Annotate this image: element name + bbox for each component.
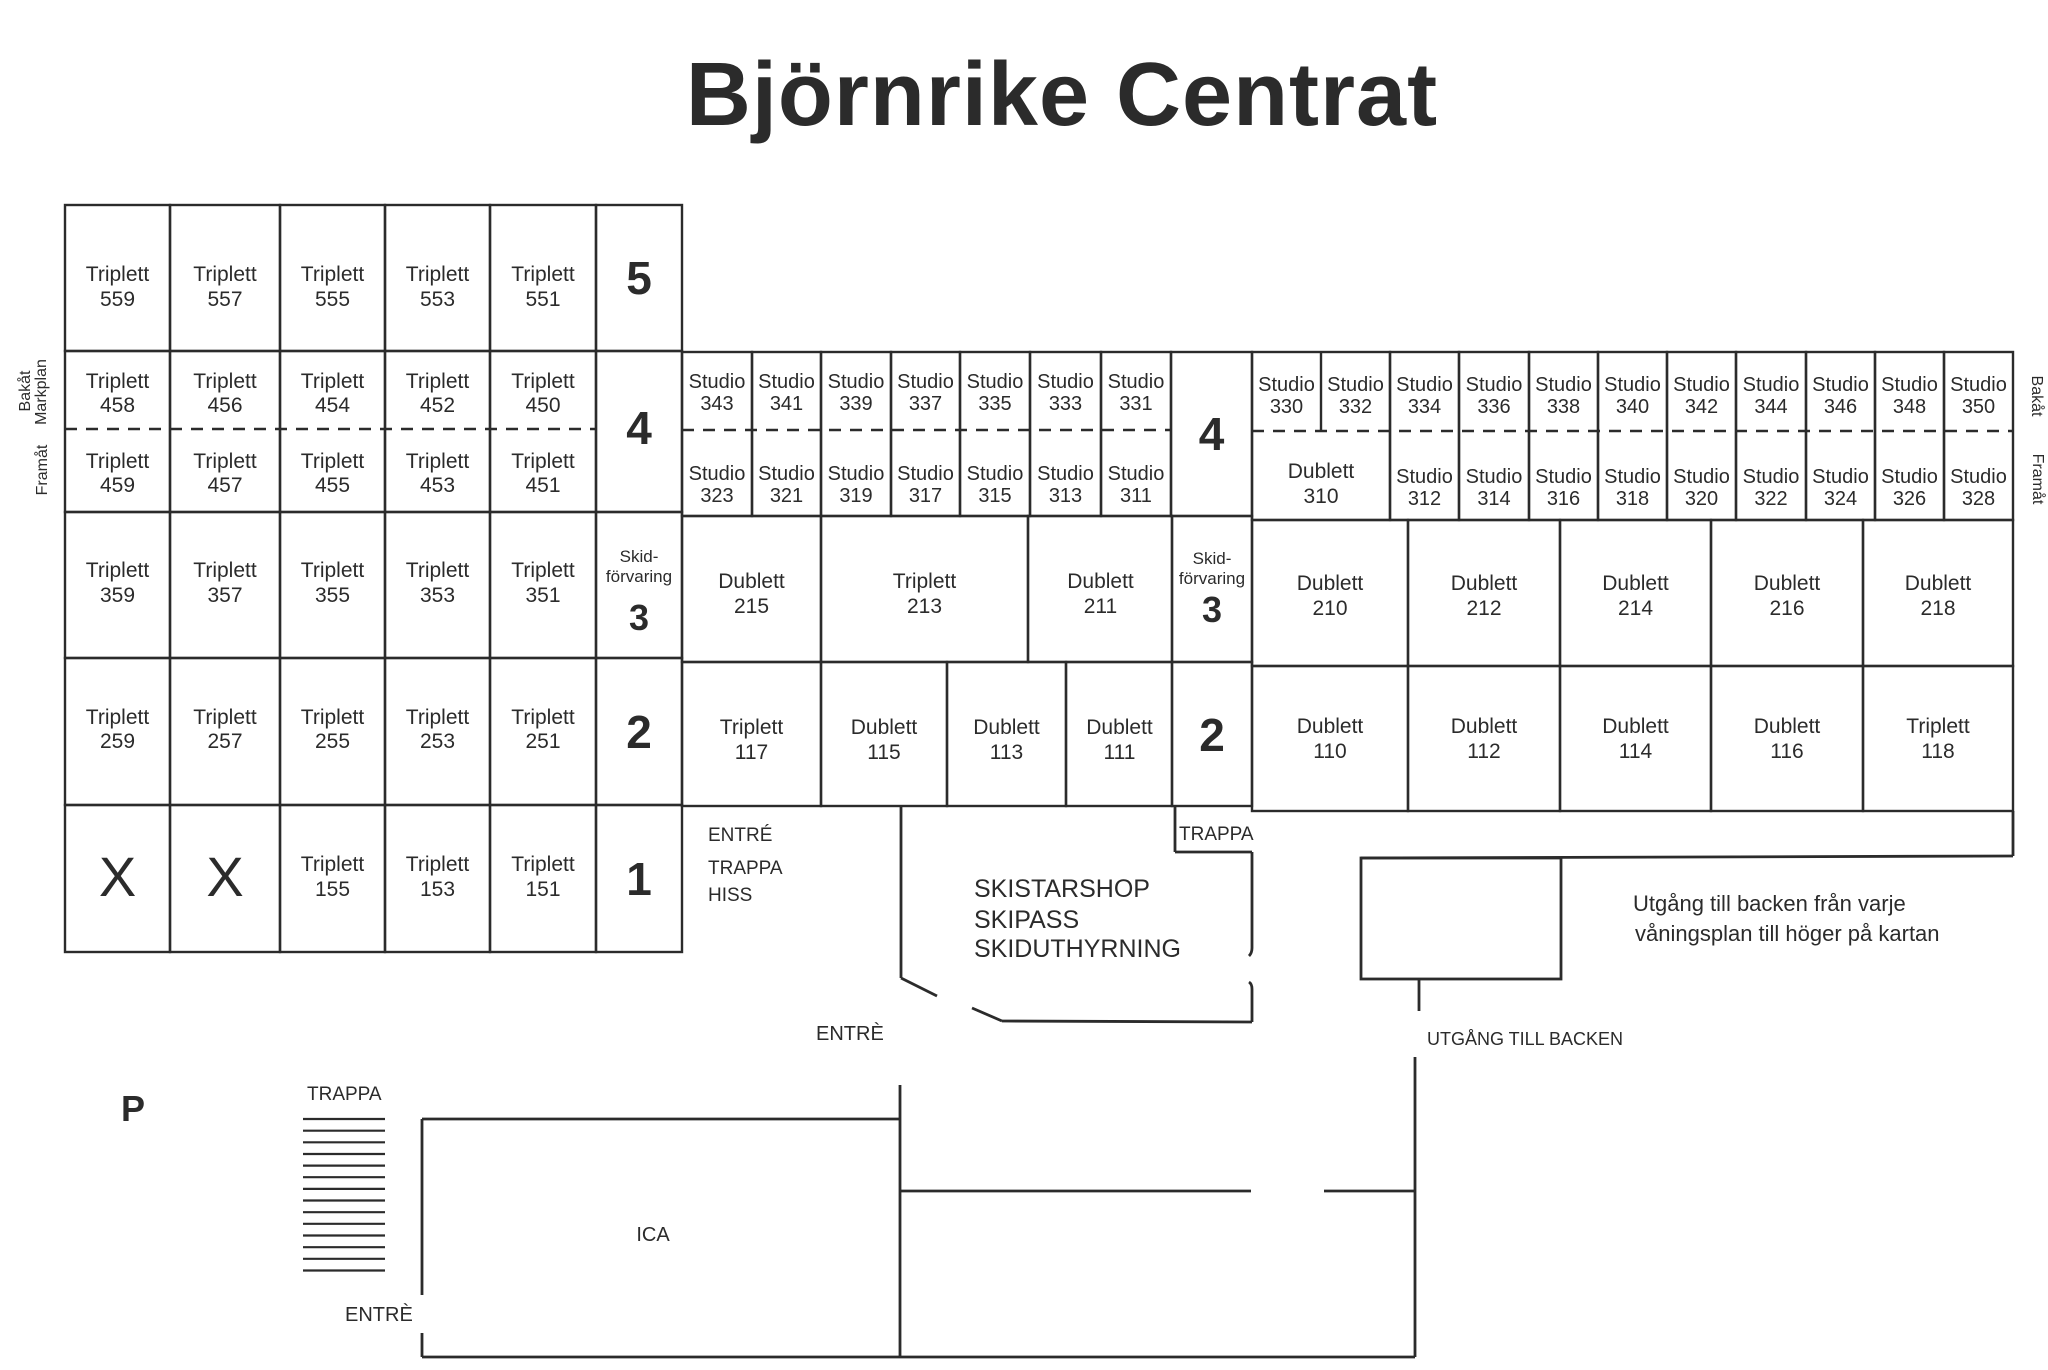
svg-text:Studio332: Studio332 [1327, 374, 1384, 418]
svg-text:3: 3 [629, 597, 649, 638]
svg-text:UTGÅNG TILL BACKEN: UTGÅNG TILL BACKEN [1427, 1029, 1623, 1049]
svg-text:Triplett458: Triplett458 [86, 370, 150, 417]
svg-text:X: X [99, 845, 136, 908]
svg-text:Utgång till backen från varje: Utgång till backen från varje [1633, 891, 1906, 916]
svg-text:Studio313: Studio313 [1037, 463, 1094, 507]
svg-text:Studio346: Studio346 [1812, 374, 1869, 418]
svg-text:Studio312: Studio312 [1396, 466, 1453, 510]
svg-text:Triplett359: Triplett359 [86, 559, 150, 607]
svg-text:Skid-: Skid- [1193, 549, 1232, 568]
svg-text:Dublett110: Dublett110 [1297, 715, 1364, 763]
svg-text:Studio334: Studio334 [1396, 374, 1453, 418]
svg-text:ICA: ICA [636, 1224, 670, 1246]
svg-text:Studio314: Studio314 [1466, 466, 1523, 510]
svg-text:Studio321: Studio321 [758, 463, 815, 507]
svg-text:Skid-: Skid- [620, 547, 659, 566]
svg-text:Triplett455: Triplett455 [301, 450, 365, 497]
svg-text:Studio323: Studio323 [689, 463, 746, 507]
svg-text:Studio338: Studio338 [1535, 374, 1592, 418]
svg-text:Studio326: Studio326 [1881, 466, 1938, 510]
svg-text:Dublett216: Dublett216 [1754, 572, 1821, 620]
svg-text:Triplett555: Triplett555 [301, 263, 365, 311]
svg-text:Studio336: Studio336 [1466, 374, 1523, 418]
svg-text:Studio344: Studio344 [1743, 374, 1800, 418]
svg-text:Triplett118: Triplett118 [1906, 715, 1970, 763]
svg-text:Triplett454: Triplett454 [301, 370, 365, 417]
svg-text:Triplett253: Triplett253 [406, 706, 470, 753]
svg-text:Dublett214: Dublett214 [1602, 572, 1669, 620]
svg-text:Triplett451: Triplett451 [511, 450, 575, 497]
svg-text:SKIPASS: SKIPASS [974, 906, 1079, 934]
svg-text:P: P [121, 1088, 145, 1129]
svg-text:Studio330: Studio330 [1258, 374, 1315, 418]
svg-text:Triplett452: Triplett452 [406, 370, 470, 417]
svg-text:Framåt: Framåt [2029, 454, 2047, 505]
svg-text:Dublett212: Dublett212 [1451, 572, 1518, 620]
svg-text:Studio342: Studio342 [1673, 374, 1730, 418]
svg-text:SKIDUTHYRNING: SKIDUTHYRNING [974, 935, 1181, 963]
svg-text:Triplett450: Triplett450 [511, 370, 575, 417]
svg-text:Triplett213: Triplett213 [893, 570, 957, 618]
svg-text:Triplett551: Triplett551 [511, 263, 575, 311]
svg-text:Bakåt: Bakåt [2028, 376, 2046, 417]
svg-text:ENTRÉ: ENTRÉ [708, 825, 772, 846]
svg-text:Studio317: Studio317 [897, 463, 954, 507]
svg-text:3: 3 [1202, 589, 1222, 630]
svg-text:HISS: HISS [708, 885, 752, 906]
svg-text:Dublett113: Dublett113 [973, 716, 1040, 764]
svg-text:Studio341: Studio341 [758, 371, 815, 415]
svg-text:Bakåt: Bakåt [16, 370, 34, 411]
svg-text:TRAPPA: TRAPPA [1179, 824, 1254, 845]
svg-text:Studio333: Studio333 [1037, 371, 1094, 415]
svg-text:TRAPPA: TRAPPA [708, 858, 783, 879]
svg-text:Triplett353: Triplett353 [406, 559, 470, 607]
svg-text:Triplett251: Triplett251 [511, 706, 575, 753]
svg-text:Studio315: Studio315 [967, 463, 1024, 507]
svg-text:ENTRÈ: ENTRÈ [816, 1022, 884, 1045]
svg-text:Triplett151: Triplett151 [511, 853, 575, 901]
svg-text:Studio316: Studio316 [1535, 466, 1592, 510]
svg-text:Triplett553: Triplett553 [406, 263, 470, 311]
svg-text:Triplett557: Triplett557 [193, 263, 257, 311]
svg-text:Dublett112: Dublett112 [1451, 715, 1518, 763]
svg-text:Triplett351: Triplett351 [511, 559, 575, 607]
svg-text:Triplett456: Triplett456 [193, 370, 257, 417]
svg-text:TRAPPA: TRAPPA [307, 1084, 382, 1105]
svg-text:Triplett155: Triplett155 [301, 853, 365, 901]
svg-text:Studio337: Studio337 [897, 371, 954, 415]
svg-text:2: 2 [626, 706, 652, 758]
svg-text:Triplett257: Triplett257 [193, 706, 257, 753]
svg-text:Dublett211: Dublett211 [1067, 570, 1134, 618]
svg-text:Dublett310: Dublett310 [1288, 460, 1355, 508]
svg-text:Triplett459: Triplett459 [86, 450, 150, 497]
svg-text:Studio311: Studio311 [1108, 463, 1165, 507]
svg-text:Studio343: Studio343 [689, 371, 746, 415]
svg-text:Studio331: Studio331 [1108, 371, 1165, 415]
svg-text:1: 1 [626, 853, 652, 905]
svg-text:Studio340: Studio340 [1604, 374, 1661, 418]
svg-text:Studio320: Studio320 [1673, 466, 1730, 510]
svg-text:Studio324: Studio324 [1812, 466, 1869, 510]
svg-text:2: 2 [1199, 709, 1225, 761]
svg-text:Triplett355: Triplett355 [301, 559, 365, 607]
svg-text:Dublett215: Dublett215 [718, 570, 785, 618]
svg-text:Dublett111: Dublett111 [1086, 716, 1153, 764]
svg-text:Dublett115: Dublett115 [851, 716, 918, 764]
svg-text:Framåt: Framåt [33, 444, 51, 495]
svg-text:4: 4 [1199, 408, 1225, 460]
svg-text:Studio328: Studio328 [1950, 466, 2007, 510]
svg-text:Markplan: Markplan [33, 359, 50, 425]
svg-text:SKISTARSHOP: SKISTARSHOP [974, 875, 1150, 903]
svg-text:Dublett218: Dublett218 [1905, 572, 1972, 620]
svg-text:Triplett559: Triplett559 [86, 263, 150, 311]
svg-text:4: 4 [626, 402, 652, 454]
svg-text:Studio348: Studio348 [1881, 374, 1938, 418]
svg-text:Triplett153: Triplett153 [406, 853, 470, 901]
svg-text:Triplett357: Triplett357 [193, 559, 257, 607]
svg-text:Studio322: Studio322 [1743, 466, 1800, 510]
svg-text:Studio335: Studio335 [967, 371, 1024, 415]
svg-text:Triplett255: Triplett255 [301, 706, 365, 753]
svg-text:Studio339: Studio339 [828, 371, 885, 415]
svg-text:förvaring: förvaring [606, 567, 672, 586]
svg-text:Dublett210: Dublett210 [1297, 572, 1364, 620]
svg-text:förvaring: förvaring [1179, 569, 1245, 588]
svg-text:5: 5 [626, 252, 652, 304]
svg-text:Dublett114: Dublett114 [1602, 715, 1669, 763]
svg-text:Björnrike Centrat: Björnrike Centrat [686, 45, 1438, 145]
svg-text:Triplett457: Triplett457 [193, 450, 257, 497]
svg-text:ENTRÈ: ENTRÈ [345, 1303, 413, 1326]
svg-text:Dublett116: Dublett116 [1754, 715, 1821, 763]
svg-text:Triplett117: Triplett117 [720, 716, 784, 764]
svg-text:Triplett453: Triplett453 [406, 450, 470, 497]
svg-text:Studio319: Studio319 [828, 463, 885, 507]
svg-text:X: X [206, 845, 243, 908]
svg-text:Triplett259: Triplett259 [86, 706, 150, 753]
svg-text:Studio350: Studio350 [1950, 374, 2007, 418]
svg-text:våningsplan till höger på kart: våningsplan till höger på kartan [1635, 921, 1940, 946]
svg-text:Studio318: Studio318 [1604, 466, 1661, 510]
